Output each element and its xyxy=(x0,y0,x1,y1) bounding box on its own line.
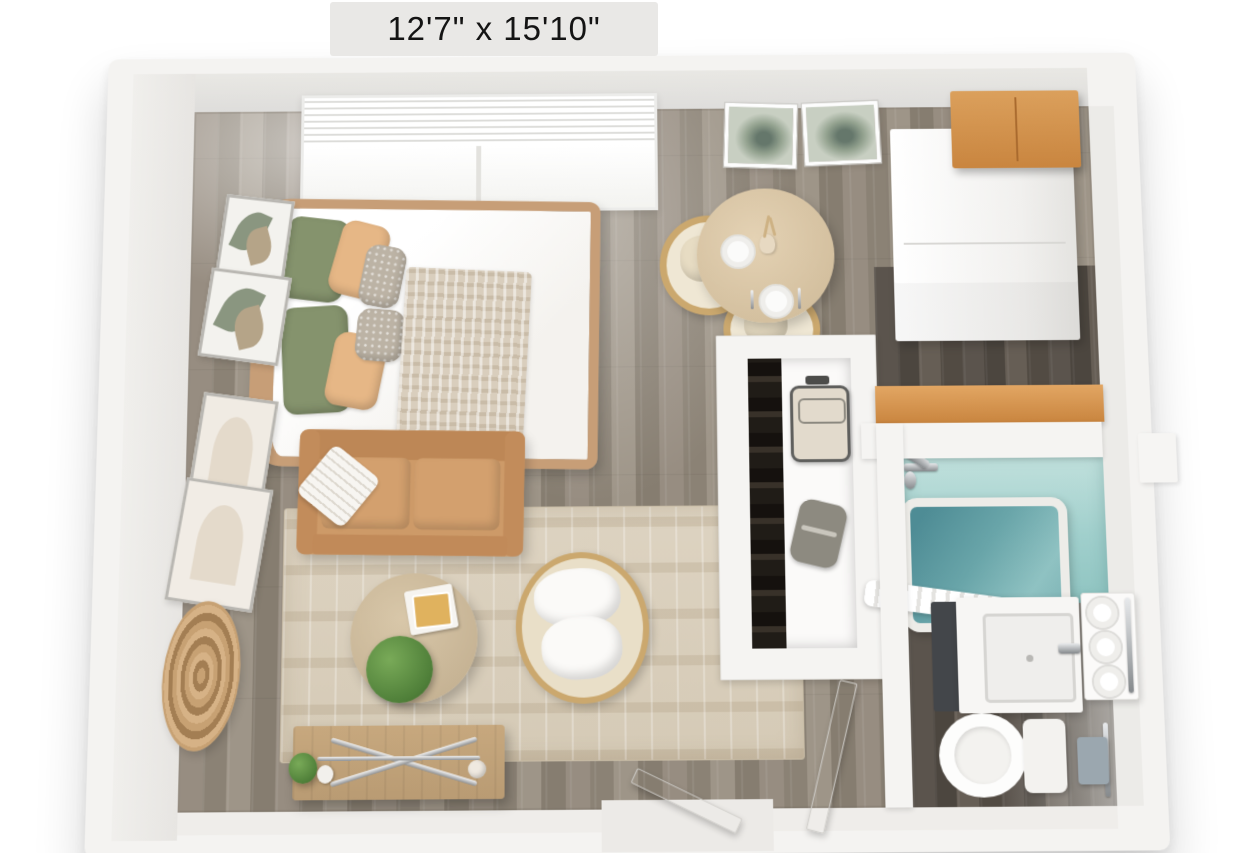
console-knob xyxy=(468,760,486,779)
shower-surround xyxy=(904,453,1109,604)
media-console xyxy=(292,725,504,801)
botanical-art xyxy=(198,267,292,366)
console-plant xyxy=(288,753,317,784)
apartment-plan xyxy=(84,53,1170,853)
sink-faucet xyxy=(1058,643,1081,653)
towel-shelf xyxy=(1080,592,1139,700)
botanical-art xyxy=(216,194,295,280)
duffel-bag xyxy=(788,497,849,570)
rolled-towel xyxy=(1084,596,1120,631)
succulent-print xyxy=(802,101,881,166)
place-setting xyxy=(758,284,794,319)
hand-towel-bar xyxy=(1076,723,1116,797)
vanity-sink xyxy=(956,597,1083,714)
rolled-towel xyxy=(1091,664,1127,699)
vase xyxy=(317,765,334,784)
closet xyxy=(716,335,885,681)
rolled-towel xyxy=(1088,630,1124,665)
closet-interior xyxy=(748,358,858,649)
wall-bump-out xyxy=(1138,433,1178,483)
closet-wood-shelf xyxy=(875,385,1104,424)
hand-towel xyxy=(1077,737,1109,785)
suitcase xyxy=(790,385,851,462)
wood-wall-cabinets xyxy=(950,90,1081,168)
round-dining-table xyxy=(696,188,836,323)
faucet-valve xyxy=(904,471,916,489)
book-cover xyxy=(412,591,453,629)
leaf-print xyxy=(724,103,797,169)
patterned-pillow xyxy=(354,307,406,363)
table-centerpiece xyxy=(759,234,775,253)
hanging-clothes xyxy=(748,358,787,648)
place-setting xyxy=(720,234,756,269)
window-blinds xyxy=(304,96,655,147)
towel-rail xyxy=(1125,597,1134,692)
window xyxy=(300,93,658,212)
knit-throw xyxy=(396,267,532,442)
dimension-label-text: 12'7" x 15'10" xyxy=(387,10,600,48)
floor-plan-render: 12'7" x 15'10" xyxy=(0,0,1253,853)
loveseat-sofa xyxy=(296,429,525,556)
toilet-tank xyxy=(1022,719,1067,793)
dimension-label: 12'7" x 15'10" xyxy=(330,2,658,56)
potted-plant xyxy=(366,636,433,704)
bed xyxy=(246,199,600,470)
